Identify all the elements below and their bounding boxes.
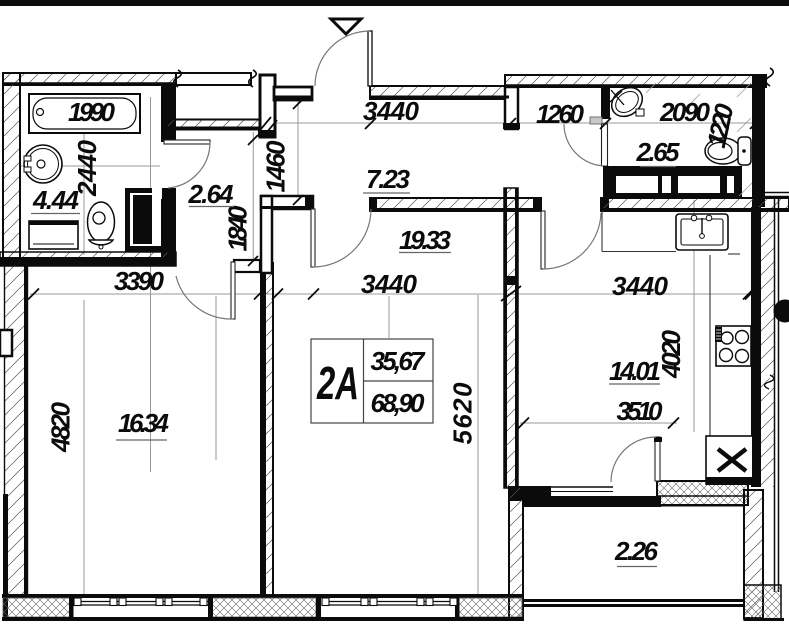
svg-text:1260: 1260 — [536, 99, 585, 129]
svg-text:1840: 1840 — [223, 205, 253, 252]
svg-text:2.65: 2.65 — [636, 137, 681, 167]
svg-text:2.26: 2.26 — [614, 536, 659, 566]
svg-text:2.64: 2.64 — [188, 179, 235, 209]
svg-text:7.23: 7.23 — [366, 164, 411, 194]
svg-text:14.01: 14.01 — [609, 356, 661, 386]
svg-text:4.44: 4.44 — [32, 185, 80, 215]
svg-text:68,90: 68,90 — [371, 388, 426, 418]
svg-text:3510: 3510 — [617, 396, 664, 426]
svg-text:4820: 4820 — [46, 401, 76, 453]
svg-text:19.33: 19.33 — [399, 225, 452, 255]
svg-text:35,67: 35,67 — [371, 346, 427, 376]
svg-text:3440: 3440 — [363, 96, 420, 126]
svg-text:3440: 3440 — [361, 269, 418, 299]
svg-text:2A: 2A — [316, 357, 359, 409]
svg-text:5620: 5620 — [448, 382, 478, 445]
svg-text:1990: 1990 — [68, 97, 116, 127]
svg-text:16.34: 16.34 — [118, 408, 170, 438]
svg-text:1460: 1460 — [261, 140, 291, 193]
svg-text:3440: 3440 — [612, 271, 669, 301]
svg-text:3390: 3390 — [114, 266, 165, 296]
svg-text:4020: 4020 — [656, 329, 686, 379]
svg-text:2090: 2090 — [659, 97, 711, 127]
